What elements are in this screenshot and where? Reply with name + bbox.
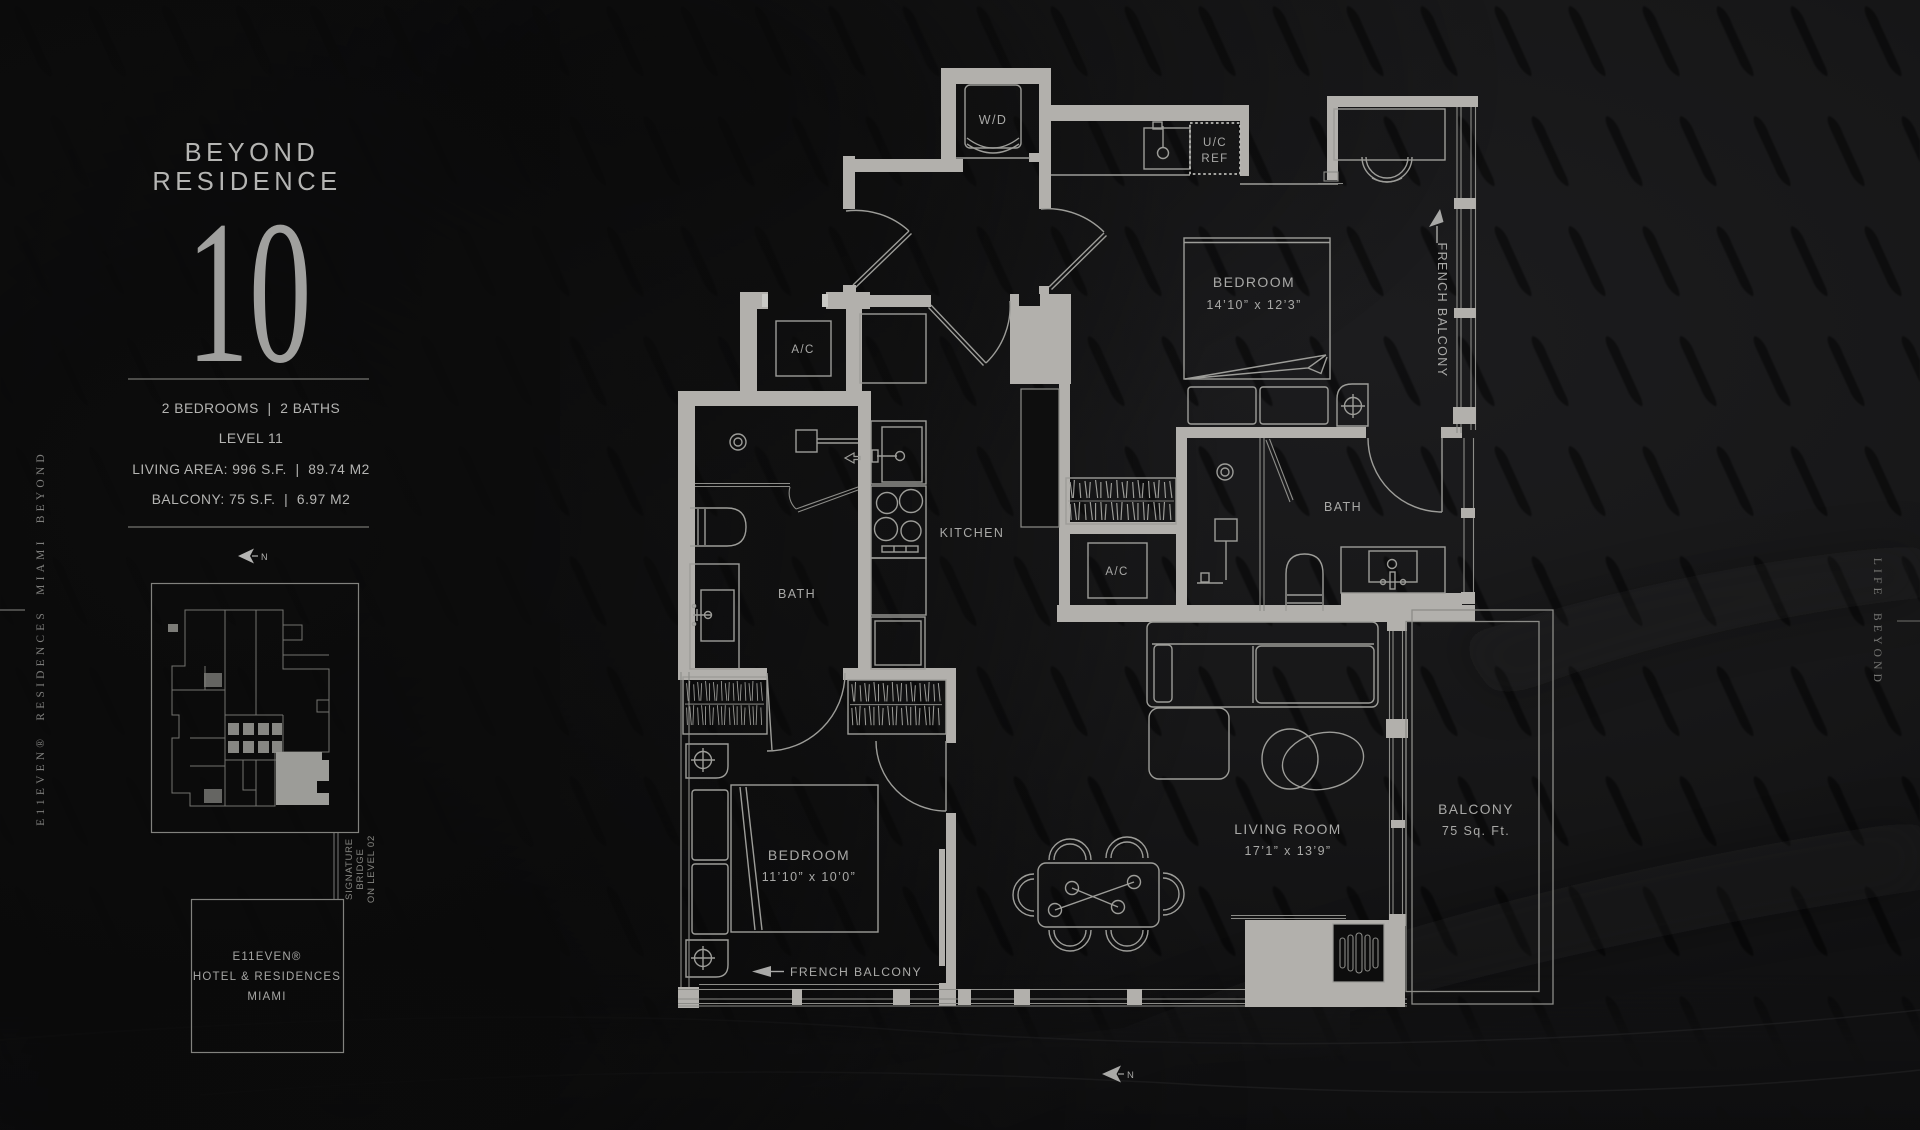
svg-text:BEDROOM: BEDROOM — [768, 847, 850, 863]
svg-text:14’10” x 12’3”: 14’10” x 12’3” — [1206, 298, 1301, 312]
svg-text:BATH: BATH — [1324, 500, 1362, 514]
svg-text:HOTEL & RESIDENCES: HOTEL & RESIDENCES — [193, 971, 341, 983]
svg-text:E11EVEN® RESIDENCES MIAMI B: E11EVEN® RESIDENCES MIAMI BEYOND — [35, 450, 47, 826]
svg-text:LIVING AREA: 996 S.F. | 89.7: LIVING AREA: 996 S.F. | 89.74 M2 — [132, 462, 370, 477]
svg-text:A/C: A/C — [1105, 566, 1128, 578]
svg-text:BEDROOM: BEDROOM — [1213, 274, 1295, 290]
svg-text:17’1” x 13’9”: 17’1” x 13’9” — [1245, 844, 1332, 858]
svg-text:BALCONY: 75 S.F. | 6.97 M2: BALCONY: 75 S.F. | 6.97 M2 — [152, 492, 351, 507]
svg-text:10: 10 — [187, 179, 312, 406]
svg-text:FRENCH BALCONY: FRENCH BALCONY — [790, 965, 922, 979]
svg-text:2 BEDROOMS | 2 BATHS: 2 BEDROOMS | 2 BATHS — [162, 401, 340, 416]
svg-text:BATH: BATH — [778, 587, 816, 601]
svg-text:LIVING ROOM: LIVING ROOM — [1234, 822, 1341, 837]
svg-text:11’10” x 10’0”: 11’10” x 10’0” — [762, 870, 856, 884]
svg-text:BEYOND: BEYOND — [185, 139, 320, 167]
svg-text:N: N — [1127, 1070, 1135, 1081]
svg-text:75 Sq. Ft.: 75 Sq. Ft. — [1442, 824, 1510, 838]
svg-text:MIAMI: MIAMI — [247, 991, 286, 1003]
svg-text:W/D: W/D — [979, 113, 1008, 127]
svg-text:E11EVEN®: E11EVEN® — [233, 951, 302, 963]
svg-text:A/C: A/C — [791, 344, 814, 356]
svg-text:KITCHEN: KITCHEN — [940, 526, 1005, 540]
svg-text:LIFE BEYOND: LIFE BEYOND — [1871, 558, 1883, 686]
svg-text:N: N — [261, 552, 268, 562]
svg-text:BALCONY: BALCONY — [1438, 802, 1514, 817]
svg-text:FRENCH BALCONY: FRENCH BALCONY — [1435, 243, 1449, 378]
svg-text:LEVEL 11: LEVEL 11 — [219, 431, 284, 446]
